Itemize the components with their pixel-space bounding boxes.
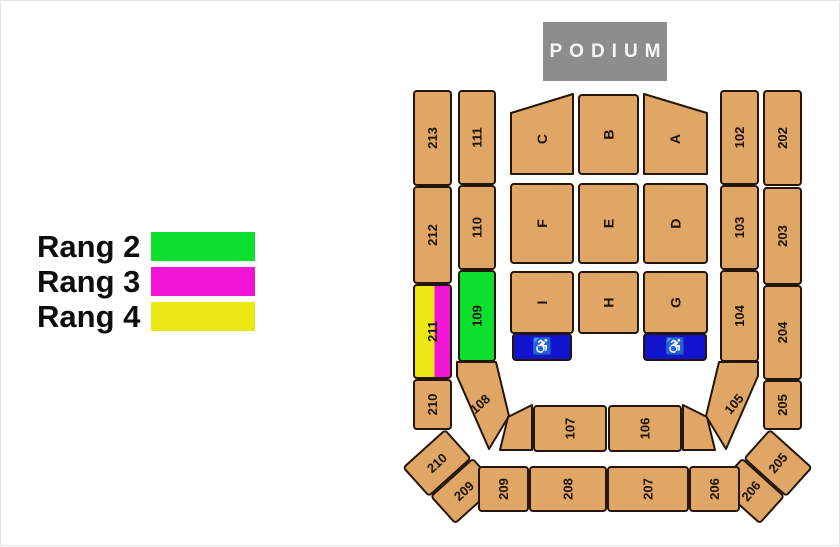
- podium-stage: PODIUM: [543, 22, 667, 81]
- seat-block-108[interactable]: 108: [457, 362, 509, 449]
- seat-block-D[interactable]: D: [644, 184, 707, 263]
- seat-block-212[interactable]: 212: [414, 187, 451, 283]
- seat-label-104: 104: [732, 304, 747, 326]
- seat-label-B: B: [601, 129, 617, 139]
- seat-label-211: 211: [425, 321, 440, 342]
- seat-block-110[interactable]: 110: [459, 186, 495, 269]
- seat-block-211[interactable]: 211: [414, 285, 451, 378]
- seat-block-105[interactable]: 105: [706, 362, 758, 449]
- seat-block-111[interactable]: 111: [459, 91, 495, 184]
- wheelchair-icon: ♿: [665, 337, 685, 356]
- legend-swatch-rang2-color: [151, 232, 255, 261]
- seat-block-106[interactable]: 106: [609, 406, 681, 451]
- seat-label-I: I: [534, 301, 550, 305]
- seat-block-C[interactable]: C: [511, 94, 573, 174]
- seat-label-212: 212: [425, 224, 440, 246]
- seat-label-D: D: [668, 218, 684, 228]
- seat-label-213: 213: [425, 127, 440, 149]
- seat-label-C: C: [534, 134, 550, 144]
- seat-block-107[interactable]: 107: [534, 406, 606, 451]
- seat-block-104[interactable]: 104: [721, 271, 758, 361]
- seat-block-109[interactable]: 109: [459, 271, 495, 361]
- legend-swatch-rang4-color: [151, 302, 255, 331]
- seat-block-207[interactable]: 207: [608, 467, 688, 511]
- seat-block-208[interactable]: 208: [530, 467, 606, 511]
- seat-label-103: 103: [732, 217, 747, 239]
- seat-label-E: E: [601, 219, 617, 228]
- legend-row-rang3: Rang 3: [37, 264, 277, 299]
- legend-label-rang2: Rang 2: [37, 229, 151, 264]
- seat-label-205: 205: [775, 394, 790, 416]
- seat-label-110: 110: [470, 217, 485, 238]
- seat-label-207: 207: [641, 478, 656, 500]
- seat-label-H: H: [601, 297, 617, 307]
- seat-block-F[interactable]: F: [511, 184, 573, 263]
- legend-swatch-rang3-color: [151, 267, 255, 296]
- seat-label-210: 210: [425, 394, 440, 416]
- seat-block-G[interactable]: G: [644, 272, 707, 333]
- seat-label-106: 106: [638, 418, 653, 440]
- seat-block-H[interactable]: H: [579, 272, 638, 333]
- legend-row-rang2: Rang 2: [37, 229, 277, 264]
- seat-block-213[interactable]: 213: [414, 91, 451, 185]
- seat-label-209: 209: [496, 478, 511, 500]
- seat-block-203[interactable]: 203: [764, 188, 801, 284]
- seat-block-205[interactable]: 205: [764, 381, 801, 429]
- seat-label-206: 206: [707, 478, 722, 500]
- seat-block-I[interactable]: I: [511, 272, 573, 333]
- seat-label-G: G: [668, 297, 684, 308]
- seat-block-202[interactable]: 202: [764, 91, 801, 185]
- seat-block-E[interactable]: E: [579, 184, 638, 263]
- legend-row-rang4: Rang 4: [37, 299, 277, 334]
- wheelchair-icon: ♿: [532, 337, 552, 356]
- seat-block-209[interactable]: 209: [479, 467, 528, 511]
- seating-plan-page: { "colors": { "tan": "#dfa666", "outline…: [0, 0, 840, 546]
- seat-label-107: 107: [563, 418, 578, 440]
- seat-block-103[interactable]: 103: [721, 186, 758, 269]
- seat-block-wheelchair-right[interactable]: ♿: [644, 334, 706, 360]
- legend-label-rang4: Rang 4: [37, 299, 151, 334]
- seat-block-204[interactable]: 204: [764, 286, 801, 379]
- legend-label-rang3: Rang 3: [37, 264, 151, 299]
- seat-label-102: 102: [732, 127, 747, 149]
- seat-block-A[interactable]: A: [644, 94, 707, 174]
- seat-label-A: A: [667, 134, 683, 144]
- seat-block-206[interactable]: 206: [690, 467, 739, 511]
- seat-block-210[interactable]: 210: [414, 380, 451, 429]
- legend: Rang 2 Rang 3 Rang 4: [37, 229, 277, 334]
- seat-block-102[interactable]: 102: [721, 91, 758, 184]
- seat-label-203: 203: [775, 225, 790, 247]
- seat-label-208: 208: [561, 478, 576, 500]
- seat-label-109: 109: [470, 305, 485, 327]
- seat-label-204: 204: [775, 321, 790, 343]
- seat-label-202: 202: [775, 127, 790, 149]
- seat-block-B[interactable]: B: [579, 95, 638, 174]
- seat-label-F: F: [534, 219, 550, 228]
- seat-block-wheelchair-left[interactable]: ♿: [513, 334, 571, 360]
- seat-label-111: 111: [470, 127, 485, 147]
